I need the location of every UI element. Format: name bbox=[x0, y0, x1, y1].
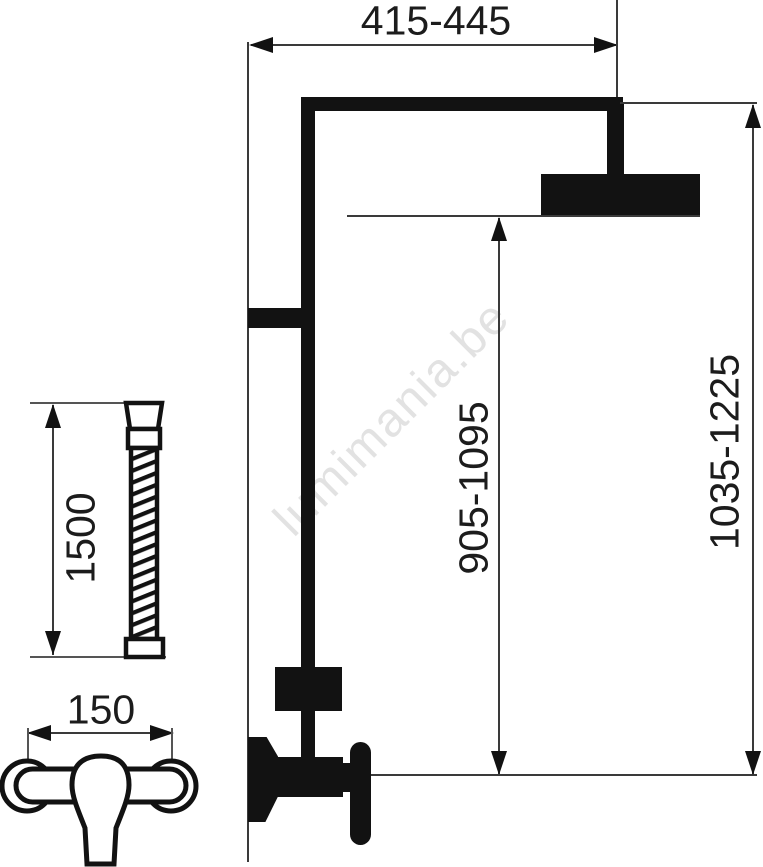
mixer-front-view bbox=[2, 756, 196, 864]
mixer-lever-handle bbox=[72, 756, 129, 864]
outline-shapes-layer bbox=[0, 0, 763, 867]
hose-flexible-body bbox=[131, 448, 157, 639]
hose-top-nut bbox=[128, 429, 160, 448]
hose-top-cone bbox=[126, 403, 162, 429]
hose-bottom-nut bbox=[126, 639, 163, 657]
shower-hose bbox=[126, 403, 163, 657]
shower-system-dimension-drawing: lumimania.be 415-445 905-1095 1035-1225 … bbox=[0, 0, 763, 867]
